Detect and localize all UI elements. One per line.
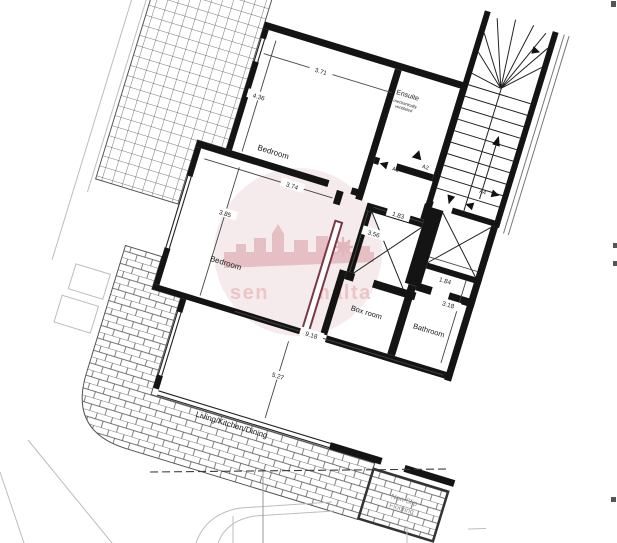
door-arrow-icon bbox=[412, 149, 424, 161]
door-marker-a3: A3 bbox=[378, 159, 400, 174]
floor-plan-page: sen malta bbox=[0, 0, 617, 543]
door-marker-a4: A4 bbox=[478, 186, 500, 201]
room-label-bedroom1: Bedroom bbox=[256, 143, 290, 161]
watermark-text-left: sen bbox=[230, 282, 269, 304]
room-label-bathroom: Bathroom bbox=[412, 321, 446, 339]
staircase bbox=[433, 12, 553, 220]
door-arrow-icon bbox=[378, 159, 388, 169]
floor-plan-canvas: sen malta bbox=[0, 0, 617, 543]
edge-marks bbox=[611, 1, 617, 502]
door-marker-a4-label: A4 bbox=[478, 189, 486, 197]
neighbour-balcony bbox=[54, 295, 99, 333]
room-label-boxroom: Box room bbox=[350, 303, 383, 321]
neighbour-balcony bbox=[68, 264, 110, 299]
door-marker-a2-label: A2 bbox=[421, 164, 429, 172]
door-marker-a3-label: A3 bbox=[391, 166, 399, 174]
